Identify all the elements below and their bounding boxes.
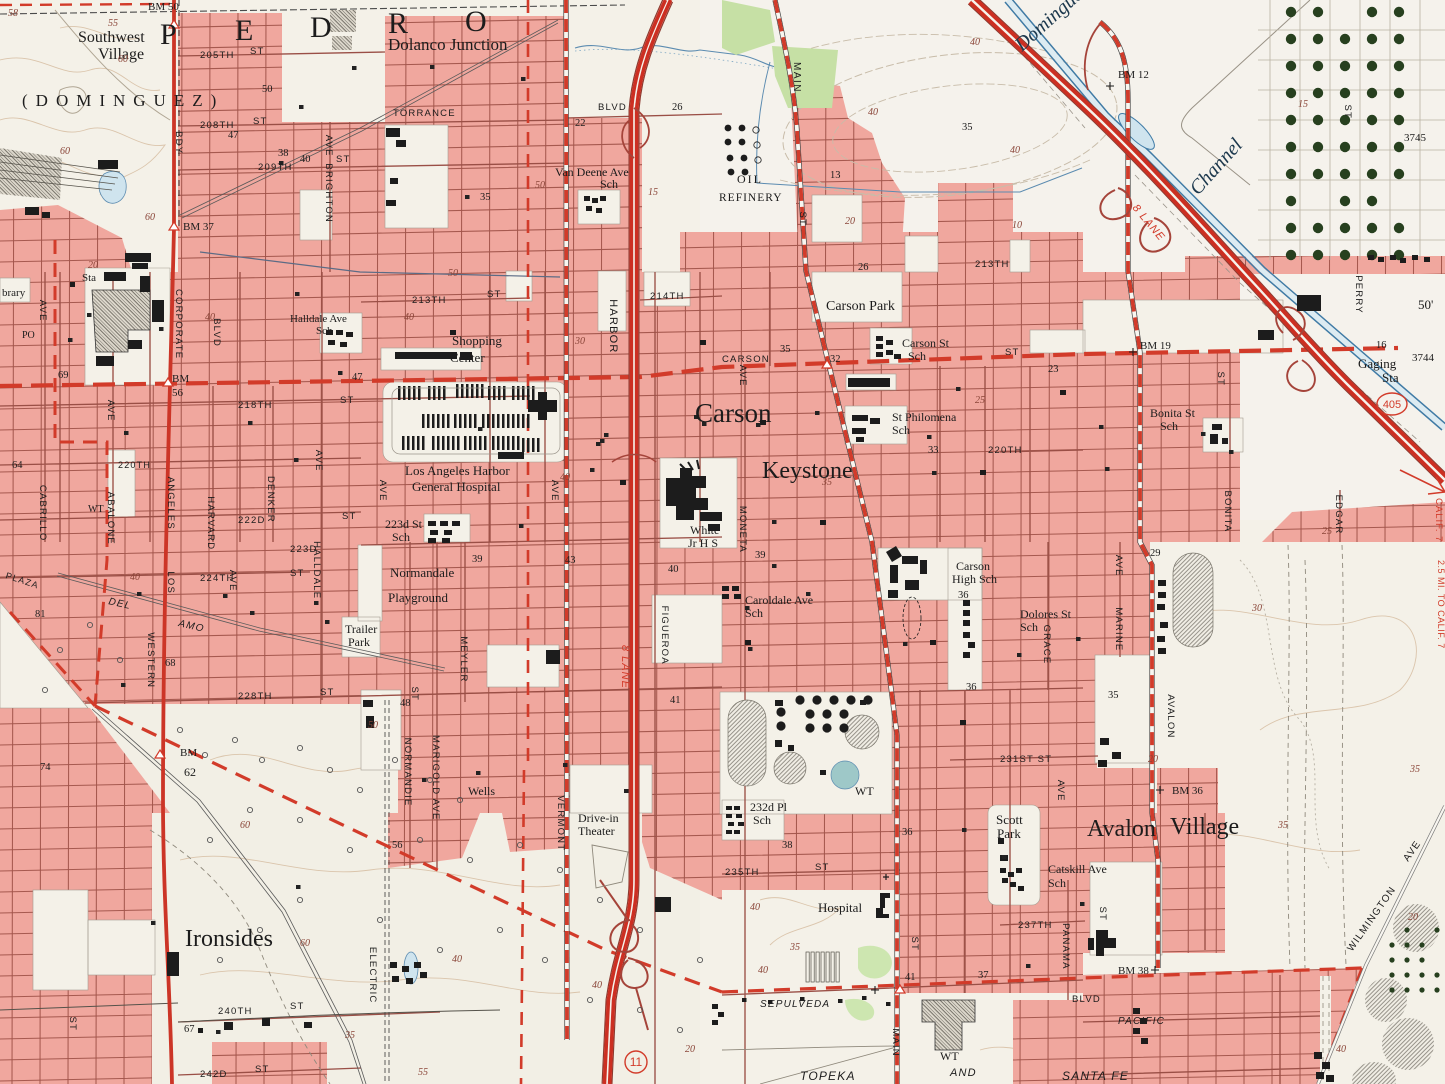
- svg-text:EDGAR: EDGAR: [1333, 495, 1344, 535]
- svg-text:Wells: Wells: [468, 784, 495, 798]
- svg-text:15: 15: [648, 187, 658, 198]
- svg-text:222D: 222D: [238, 515, 266, 526]
- svg-text:33: 33: [928, 445, 939, 456]
- svg-text:35: 35: [1108, 690, 1119, 701]
- svg-text:38: 38: [782, 840, 793, 851]
- svg-text:AVE: AVE: [323, 135, 334, 157]
- svg-text:P: P: [160, 18, 177, 51]
- svg-text:Halldale Ave: Halldale Ave: [290, 313, 347, 325]
- svg-text:50: 50: [535, 180, 545, 191]
- svg-text:60: 60: [300, 938, 310, 949]
- svg-text:BLVD: BLVD: [598, 102, 627, 113]
- svg-text:20: 20: [1148, 754, 1158, 765]
- svg-text:56: 56: [392, 840, 403, 851]
- svg-text:PANAMA: PANAMA: [1060, 923, 1071, 970]
- svg-text:Carson: Carson: [695, 398, 772, 428]
- svg-text:40: 40: [560, 472, 570, 483]
- svg-text:3744: 3744: [1412, 352, 1435, 364]
- svg-text:AVE: AVE: [737, 365, 748, 387]
- svg-text:Sch: Sch: [1048, 876, 1066, 890]
- svg-text:220TH: 220TH: [118, 460, 151, 470]
- svg-text:35: 35: [344, 1030, 355, 1041]
- svg-text:16: 16: [1376, 340, 1387, 351]
- svg-text:26: 26: [672, 102, 683, 113]
- svg-text:CORPORATE: CORPORATE: [173, 289, 184, 359]
- svg-text:Sch: Sch: [1020, 620, 1038, 634]
- svg-text:MONETA: MONETA: [737, 506, 748, 553]
- svg-text:20: 20: [685, 1044, 695, 1055]
- svg-text:55: 55: [418, 1067, 428, 1078]
- svg-text:231ST ST: 231ST ST: [1000, 754, 1052, 765]
- svg-text:30: 30: [574, 336, 585, 347]
- svg-text:228TH: 228TH: [238, 691, 273, 702]
- svg-text:MEYLER: MEYLER: [458, 636, 469, 682]
- svg-text:Caroldale Ave: Caroldale Ave: [745, 593, 813, 607]
- svg-text:ST: ST: [1215, 372, 1226, 387]
- svg-text:32: 32: [830, 354, 841, 365]
- svg-text:CALIF. 7: CALIF. 7: [1433, 498, 1444, 542]
- svg-text:58: 58: [8, 8, 18, 19]
- svg-text:AVE: AVE: [105, 400, 116, 422]
- svg-text:48: 48: [400, 698, 411, 709]
- svg-text:242D: 242D: [200, 1069, 228, 1080]
- svg-text:AVE: AVE: [1113, 555, 1124, 577]
- svg-text:13: 13: [830, 170, 841, 181]
- svg-text:O: O: [465, 5, 487, 38]
- svg-text:brary: brary: [2, 287, 26, 299]
- svg-text:39: 39: [755, 550, 766, 561]
- svg-text:Jr H S: Jr H S: [688, 536, 718, 550]
- svg-text:Playground: Playground: [388, 590, 448, 605]
- svg-text:ST: ST: [815, 862, 830, 873]
- svg-text:35: 35: [789, 942, 800, 953]
- svg-text:Bonita St: Bonita St: [1150, 406, 1196, 420]
- svg-text:220TH: 220TH: [988, 445, 1023, 456]
- svg-text:White: White: [690, 523, 719, 537]
- svg-text:FIGUEROA: FIGUEROA: [659, 606, 670, 665]
- svg-text:60: 60: [145, 212, 155, 223]
- svg-text:BRIGHTON: BRIGHTON: [323, 163, 334, 223]
- svg-text:ST: ST: [1005, 347, 1020, 358]
- svg-text:Sch: Sch: [316, 325, 333, 337]
- svg-text:AND: AND: [949, 1067, 977, 1079]
- svg-text:25: 25: [1322, 526, 1332, 537]
- svg-text:40: 40: [750, 902, 760, 913]
- svg-text:AVE: AVE: [549, 480, 560, 502]
- svg-text:AVE: AVE: [1055, 780, 1066, 802]
- svg-text:40: 40: [1010, 145, 1020, 156]
- svg-text:50: 50: [262, 84, 273, 95]
- svg-text:Sch: Sch: [892, 423, 910, 437]
- svg-text:81: 81: [35, 609, 46, 620]
- svg-text:36: 36: [958, 590, 969, 601]
- svg-text:Sch: Sch: [745, 606, 763, 620]
- svg-text:64: 64: [12, 460, 23, 471]
- svg-text:60: 60: [60, 146, 70, 157]
- svg-text:NORMANDIE: NORMANDIE: [402, 738, 413, 807]
- svg-text:223d St: 223d St: [385, 517, 423, 531]
- svg-text:Scott: Scott: [996, 812, 1023, 827]
- svg-text:MAIN: MAIN: [890, 1028, 901, 1057]
- svg-text:232d Pl: 232d Pl: [750, 800, 788, 814]
- svg-text:218TH: 218TH: [238, 400, 273, 411]
- svg-text:35: 35: [480, 192, 491, 203]
- svg-text:35: 35: [1277, 820, 1288, 831]
- svg-text:37: 37: [978, 970, 989, 981]
- svg-text:Sch: Sch: [753, 813, 771, 827]
- svg-text:HARBOR: HARBOR: [607, 299, 619, 353]
- svg-text:47: 47: [352, 372, 363, 383]
- svg-text:405: 405: [1383, 399, 1401, 411]
- svg-text:BM: BM: [172, 373, 189, 385]
- svg-text:Ironsides: Ironsides: [185, 926, 273, 952]
- svg-text:(DOMINGUEZ): (DOMINGUEZ): [22, 91, 224, 110]
- svg-text:Dolores St: Dolores St: [1020, 607, 1072, 621]
- svg-text:LOS: LOS: [165, 571, 176, 594]
- svg-text:Park: Park: [348, 635, 370, 649]
- svg-text:10: 10: [1012, 220, 1022, 231]
- svg-text:WT: WT: [88, 504, 104, 515]
- svg-text:ST: ST: [253, 116, 268, 127]
- svg-text:25: 25: [975, 395, 985, 406]
- svg-text:60: 60: [118, 54, 128, 65]
- svg-text:CARSON: CARSON: [722, 354, 770, 365]
- svg-text:Sta: Sta: [1382, 370, 1399, 385]
- svg-text:High Sch: High Sch: [952, 572, 997, 586]
- svg-text:35: 35: [1409, 764, 1420, 775]
- svg-text:43: 43: [565, 555, 576, 566]
- svg-text:PACIFIC: PACIFIC: [1118, 1016, 1165, 1027]
- svg-text:Sta: Sta: [82, 272, 96, 284]
- svg-text:HARVARD: HARVARD: [205, 496, 216, 550]
- svg-text:23: 23: [1048, 364, 1059, 375]
- svg-text:OIL: OIL: [737, 172, 763, 186]
- svg-text:209TH: 209TH: [258, 162, 293, 173]
- svg-text:ST: ST: [1097, 907, 1108, 922]
- svg-text:26: 26: [858, 262, 869, 273]
- svg-text:235TH: 235TH: [725, 867, 760, 878]
- svg-text:60: 60: [240, 820, 250, 831]
- svg-text:AVE: AVE: [313, 450, 324, 472]
- svg-text:CABRILLO: CABRILLO: [37, 485, 48, 542]
- svg-text:20: 20: [1408, 912, 1418, 923]
- svg-text:ST: ST: [409, 687, 420, 702]
- svg-text:56: 56: [172, 387, 184, 399]
- svg-text:41: 41: [670, 695, 681, 706]
- svg-text:41: 41: [905, 972, 916, 983]
- svg-text:47: 47: [228, 130, 239, 141]
- svg-text:Carson St: Carson St: [902, 336, 950, 350]
- svg-text:BDY: BDY: [173, 131, 184, 154]
- svg-text:ST: ST: [909, 937, 920, 952]
- svg-text:55: 55: [108, 18, 118, 29]
- svg-text:240TH: 240TH: [218, 1006, 253, 1017]
- svg-text:Los Angeles Harbor: Los Angeles Harbor: [405, 463, 510, 478]
- svg-text:BM 50: BM 50: [148, 1, 179, 13]
- svg-text:40: 40: [970, 37, 980, 48]
- svg-text:Southwest: Southwest: [78, 29, 145, 46]
- svg-text:AVALON: AVALON: [1165, 694, 1176, 738]
- svg-text:50: 50: [368, 720, 378, 731]
- svg-text:BM 19: BM 19: [1140, 340, 1171, 352]
- svg-text:36: 36: [902, 827, 913, 838]
- svg-text:GRACE: GRACE: [1041, 625, 1052, 665]
- svg-text:ST: ST: [255, 1064, 270, 1075]
- svg-text:WESTERN: WESTERN: [145, 632, 156, 688]
- svg-text:VERMONT: VERMONT: [555, 795, 566, 851]
- svg-text:20: 20: [845, 216, 855, 227]
- svg-text:St Philomena: St Philomena: [892, 410, 957, 424]
- svg-text:35: 35: [780, 344, 791, 355]
- svg-text:40: 40: [300, 154, 311, 165]
- svg-text:ST: ST: [797, 212, 808, 227]
- svg-text:39: 39: [472, 554, 483, 565]
- svg-text:ST: ST: [290, 568, 305, 579]
- svg-text:Avalon: Avalon: [1087, 816, 1156, 842]
- svg-text:20: 20: [88, 260, 98, 271]
- svg-text:General Hospital: General Hospital: [412, 479, 501, 494]
- svg-text:213TH: 213TH: [975, 259, 1010, 270]
- svg-text:ELECTRIC: ELECTRIC: [367, 947, 378, 1004]
- svg-text:HALLDALE: HALLDALE: [311, 541, 322, 599]
- svg-text:ST: ST: [250, 46, 265, 57]
- svg-text:SEPULVEDA: SEPULVEDA: [760, 999, 830, 1010]
- svg-text:Center: Center: [450, 350, 485, 365]
- svg-text:29: 29: [1150, 548, 1161, 559]
- svg-text:ST: ST: [336, 154, 351, 165]
- svg-text:MAIN: MAIN: [791, 62, 802, 93]
- svg-text:Keystone: Keystone: [762, 458, 853, 484]
- svg-text:Normandale: Normandale: [390, 565, 454, 580]
- svg-text:Carson: Carson: [956, 559, 990, 573]
- svg-text:TOPEKA: TOPEKA: [800, 1069, 856, 1083]
- svg-text:PO: PO: [22, 330, 35, 341]
- svg-text:ST: ST: [1342, 105, 1353, 120]
- svg-text:BM 12: BM 12: [1118, 69, 1149, 81]
- svg-text:3745: 3745: [1404, 132, 1427, 144]
- svg-text:40: 40: [868, 107, 878, 118]
- svg-text:40: 40: [758, 965, 768, 976]
- svg-text:BM 38: BM 38: [1118, 965, 1149, 977]
- svg-text:BM 36: BM 36: [1172, 785, 1203, 797]
- svg-text:ANGELES: ANGELES: [165, 477, 176, 530]
- svg-text:Park: Park: [997, 826, 1021, 841]
- svg-text:Shopping: Shopping: [452, 333, 502, 348]
- svg-text:69: 69: [58, 370, 69, 381]
- svg-text:WT: WT: [855, 784, 874, 798]
- svg-text:ST: ST: [340, 395, 355, 406]
- svg-text:Sch: Sch: [600, 177, 618, 191]
- svg-text:Village: Village: [1170, 814, 1239, 840]
- svg-text:AVE: AVE: [227, 570, 238, 592]
- svg-text:40: 40: [668, 564, 679, 575]
- svg-text:8 LANE: 8 LANE: [619, 645, 631, 689]
- svg-text:E: E: [235, 14, 253, 47]
- svg-text:22: 22: [575, 118, 586, 129]
- svg-text:Dolanco Junction: Dolanco Junction: [388, 35, 508, 54]
- svg-text:40: 40: [592, 980, 602, 991]
- svg-text:BONITA: BONITA: [1222, 490, 1233, 532]
- svg-text:213TH: 213TH: [412, 295, 447, 306]
- svg-text:D: D: [310, 11, 332, 44]
- svg-text:MARIGOLD AVE: MARIGOLD AVE: [430, 735, 441, 821]
- svg-text:BLVD: BLVD: [1072, 994, 1101, 1005]
- svg-text:ST: ST: [320, 687, 335, 698]
- svg-text:PERRY: PERRY: [1353, 275, 1364, 314]
- svg-text:Catskill Ave: Catskill Ave: [1048, 862, 1107, 876]
- svg-text:AVE: AVE: [377, 480, 388, 502]
- svg-text:ST: ST: [487, 289, 502, 300]
- svg-text:Drive-in: Drive-in: [578, 811, 619, 825]
- svg-text:Theater: Theater: [578, 824, 615, 838]
- svg-text:Sch: Sch: [392, 530, 410, 544]
- svg-text:205TH: 205TH: [200, 50, 235, 61]
- svg-text:BM: BM: [180, 747, 197, 759]
- svg-text:50': 50': [1418, 297, 1433, 312]
- svg-text:ST: ST: [342, 511, 357, 522]
- svg-text:67: 67: [184, 1024, 195, 1035]
- svg-text:Trailer: Trailer: [345, 622, 377, 636]
- svg-text:30: 30: [1251, 603, 1262, 614]
- svg-text:40: 40: [130, 572, 140, 583]
- svg-text:Hospital: Hospital: [818, 900, 862, 915]
- svg-text:40: 40: [1336, 1044, 1346, 1055]
- svg-text:AVE: AVE: [37, 300, 48, 322]
- svg-text:62: 62: [184, 765, 196, 779]
- svg-text:35: 35: [962, 122, 973, 133]
- svg-text:11: 11: [630, 1055, 643, 1069]
- svg-text:237TH: 237TH: [1018, 920, 1053, 931]
- svg-text:DENKER: DENKER: [265, 476, 276, 523]
- svg-text:38: 38: [278, 148, 289, 159]
- svg-text:WT: WT: [940, 1049, 959, 1063]
- svg-text:35: 35: [821, 477, 832, 488]
- svg-text:Gaging: Gaging: [1358, 356, 1397, 371]
- svg-text:Carson Park: Carson Park: [826, 299, 895, 314]
- svg-text:36: 36: [966, 682, 977, 693]
- svg-text:40: 40: [404, 312, 414, 323]
- svg-text:TORRANCE: TORRANCE: [393, 108, 456, 119]
- svg-text:BM 37: BM 37: [183, 221, 214, 233]
- svg-text:Sch: Sch: [908, 349, 926, 363]
- svg-text:68: 68: [165, 658, 176, 669]
- svg-text:MARINE: MARINE: [1113, 607, 1124, 651]
- svg-text:Sch: Sch: [1160, 419, 1178, 433]
- svg-text:214TH: 214TH: [650, 291, 685, 302]
- svg-text:15: 15: [1298, 99, 1308, 110]
- svg-text:50: 50: [448, 268, 458, 279]
- svg-text:REFINERY: REFINERY: [719, 192, 783, 204]
- svg-text:ABALONE: ABALONE: [105, 492, 116, 545]
- svg-text:ST: ST: [67, 1017, 78, 1032]
- svg-text:SANTA FE: SANTA FE: [1062, 1069, 1129, 1083]
- svg-text:74: 74: [40, 762, 51, 773]
- svg-text:40: 40: [452, 954, 462, 965]
- svg-text:40: 40: [205, 312, 215, 323]
- svg-text:2.5 MI. TO CALIF. 7: 2.5 MI. TO CALIF. 7: [1436, 560, 1445, 649]
- svg-text:ST: ST: [290, 1001, 305, 1012]
